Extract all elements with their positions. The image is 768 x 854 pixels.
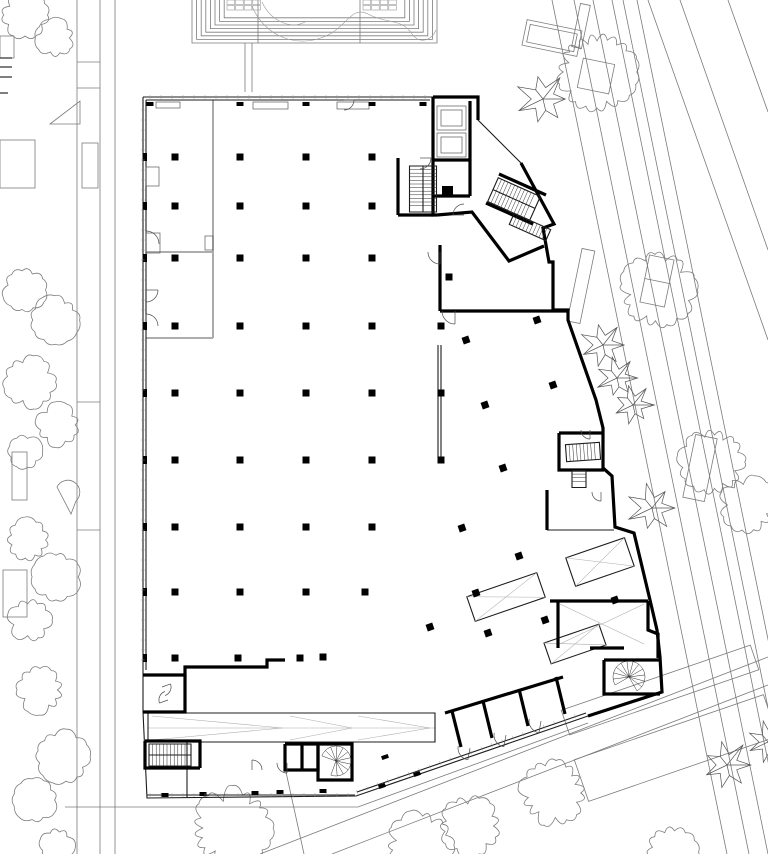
tree-canopy-icon bbox=[36, 729, 91, 785]
tree-canopy-icon bbox=[12, 777, 57, 821]
tree-canopy-icon bbox=[35, 402, 78, 448]
stepped-plaza bbox=[192, 0, 437, 43]
tree-canopy-icon bbox=[3, 355, 57, 410]
tree-canopy-icon bbox=[2, 0, 49, 39]
tree-canopy-icon bbox=[35, 17, 73, 56]
tree-canopy-icon bbox=[720, 475, 768, 534]
partition-layer bbox=[146, 100, 213, 338]
tree-canopy-icon bbox=[620, 252, 698, 328]
tree-canopy-icon bbox=[31, 295, 80, 345]
door-layer bbox=[146, 100, 601, 773]
tree-layer bbox=[2, 0, 768, 854]
tree-canopy-icon bbox=[2, 269, 47, 312]
tree-canopy-icon bbox=[7, 517, 48, 561]
heavy-wall-layer bbox=[143, 97, 662, 780]
floor-plan-page bbox=[0, 0, 768, 854]
tree-canopy-icon bbox=[39, 829, 75, 854]
tree-canopy-icon bbox=[647, 827, 699, 854]
thin-wall-layer bbox=[143, 97, 662, 798]
ramp-layer bbox=[148, 538, 644, 740]
floor-plan-svg bbox=[0, 0, 768, 854]
tree-canopy-icon bbox=[31, 553, 80, 601]
window-layer bbox=[146, 102, 466, 253]
tree-canopy-icon bbox=[7, 600, 52, 641]
site-layer bbox=[0, 0, 768, 854]
tree-canopy-icon bbox=[16, 666, 62, 715]
tree-canopy-icon bbox=[195, 785, 274, 854]
tree-canopy-icon bbox=[440, 796, 499, 854]
